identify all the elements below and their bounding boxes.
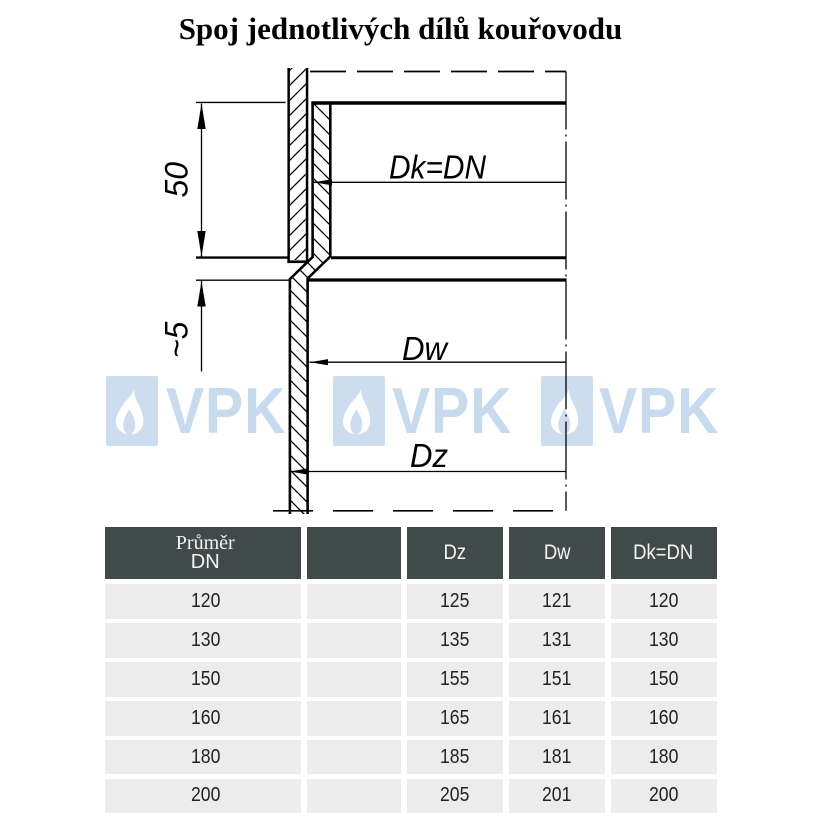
svg-text:Dw: Dw [402,330,449,367]
svg-text:Dz: Dz [410,437,448,474]
svg-text:Dk=DN: Dk=DN [389,149,486,186]
svg-text:50: 50 [159,162,195,198]
svg-text:~5: ~5 [159,321,195,358]
